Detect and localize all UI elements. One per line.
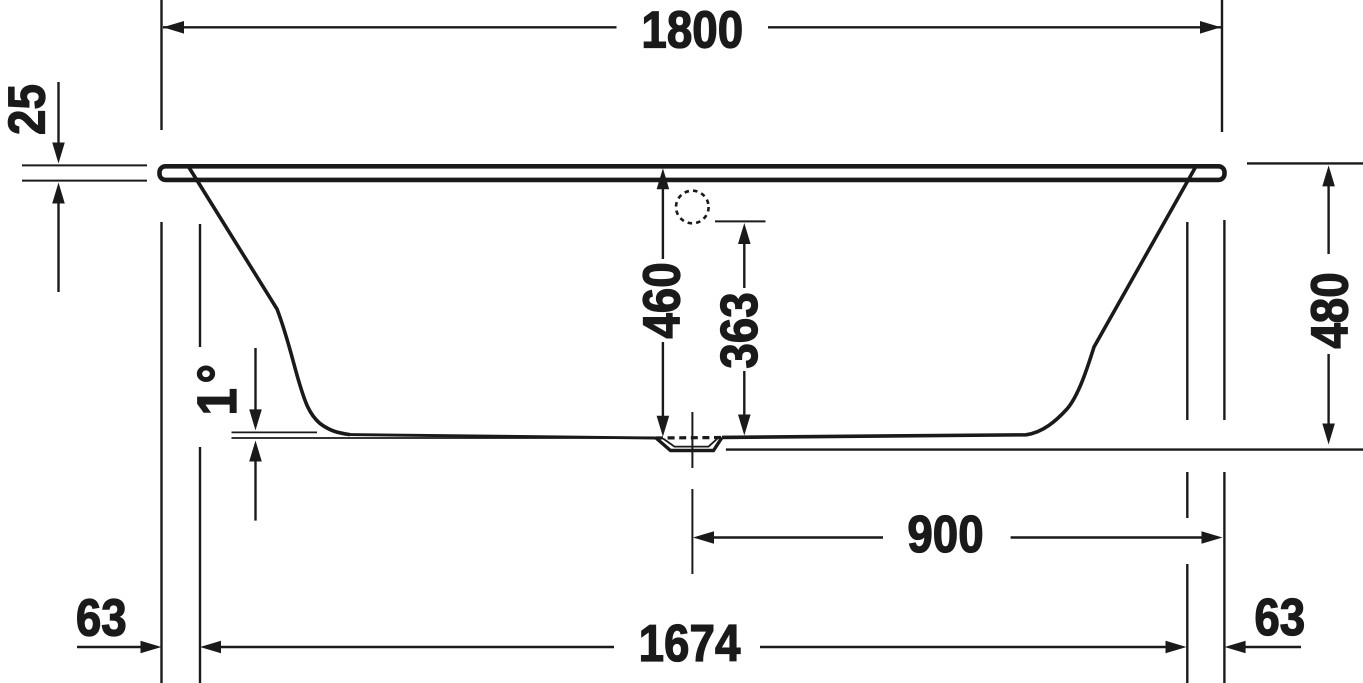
svg-text:900: 900 (907, 506, 983, 563)
svg-text:1°: 1° (186, 360, 249, 416)
svg-text:460: 460 (634, 262, 691, 338)
svg-text:63: 63 (76, 590, 127, 647)
svg-text:25: 25 (0, 84, 56, 135)
svg-text:363: 363 (711, 292, 768, 368)
svg-text:1674: 1674 (639, 615, 741, 672)
svg-text:63: 63 (1254, 589, 1305, 646)
svg-text:480: 480 (1302, 272, 1359, 348)
svg-text:1800: 1800 (641, 2, 743, 59)
